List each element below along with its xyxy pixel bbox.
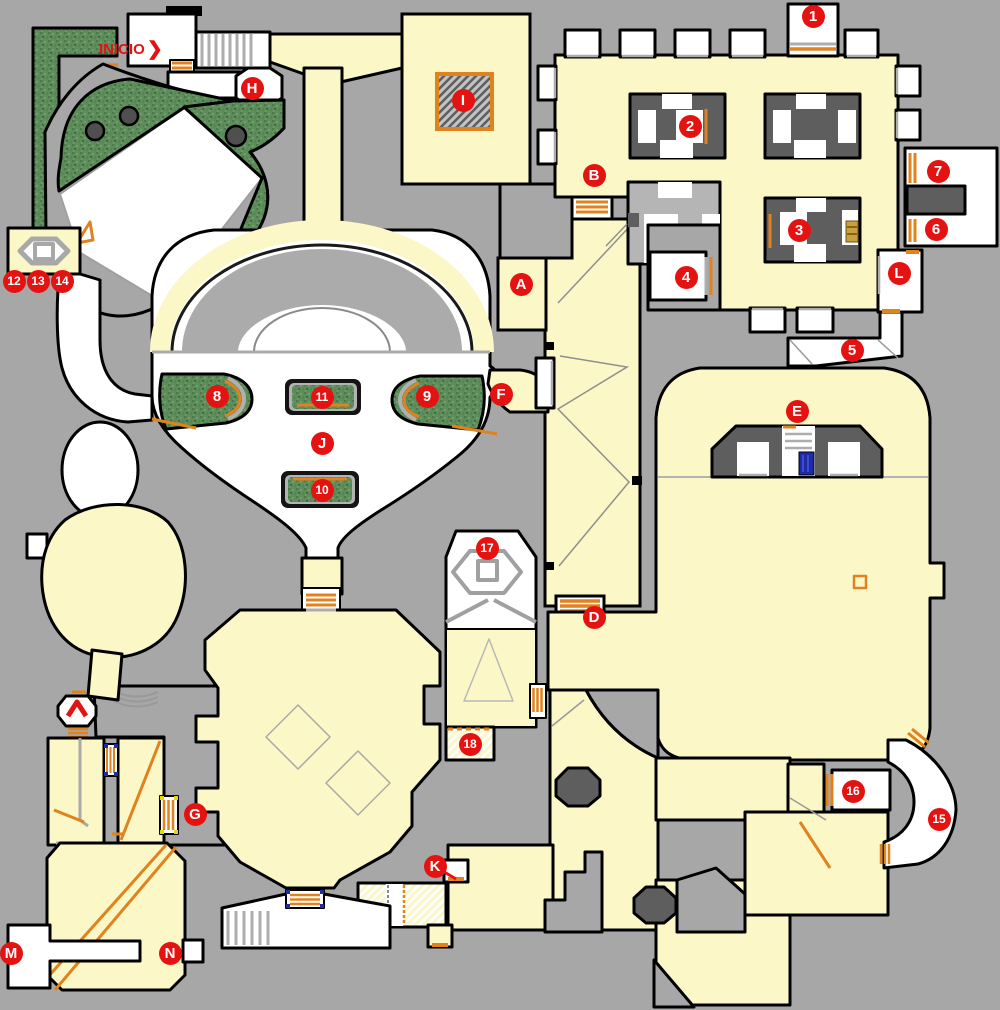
map-marker-1: 1 [802,5,825,28]
map-marker-16: 16 [842,780,865,803]
map-marker-4: 4 [675,266,698,289]
map-marker-2: 2 [679,115,702,138]
map-marker-e: E [786,400,809,423]
map-marker-j: J [311,432,334,455]
map-marker-6: 6 [925,218,948,241]
map-marker-7: 7 [927,160,950,183]
map-marker-l: L [888,262,911,285]
map-marker-10: 10 [311,479,334,502]
map-marker-i: I [452,89,475,112]
map-marker-17: 17 [476,537,499,560]
map-marker-k: K [424,855,447,878]
map-marker-3: 3 [788,219,811,242]
map-marker-b: B [583,164,606,187]
map-marker-d: D [583,606,606,629]
start-label-text: INICIO [99,41,145,58]
map-marker-12: 12 [3,270,26,293]
map-marker-g: G [184,803,207,826]
map-marker-n: N [159,942,182,965]
map-marker-5: 5 [841,339,864,362]
start-label: INICIO ❯ [99,40,163,59]
start-arrow-icon: ❯ [147,40,163,59]
map-marker-11: 11 [311,386,334,409]
map-marker-18: 18 [459,733,482,756]
map-marker-8: 8 [206,385,229,408]
map-marker-a: A [510,273,533,296]
map-marker-m: M [0,942,23,965]
map-marker-13: 13 [27,270,50,293]
map-marker-9: 9 [416,385,439,408]
map-marker-14: 14 [51,270,74,293]
level-map-page: 123456789101112131415161718ABDEFGHIJKLMN… [0,0,1000,1010]
marker-layer: 123456789101112131415161718ABDEFGHIJKLMN [0,0,1000,1010]
map-marker-f: F [490,383,513,406]
map-marker-h: H [241,77,264,100]
map-marker-15: 15 [928,808,951,831]
